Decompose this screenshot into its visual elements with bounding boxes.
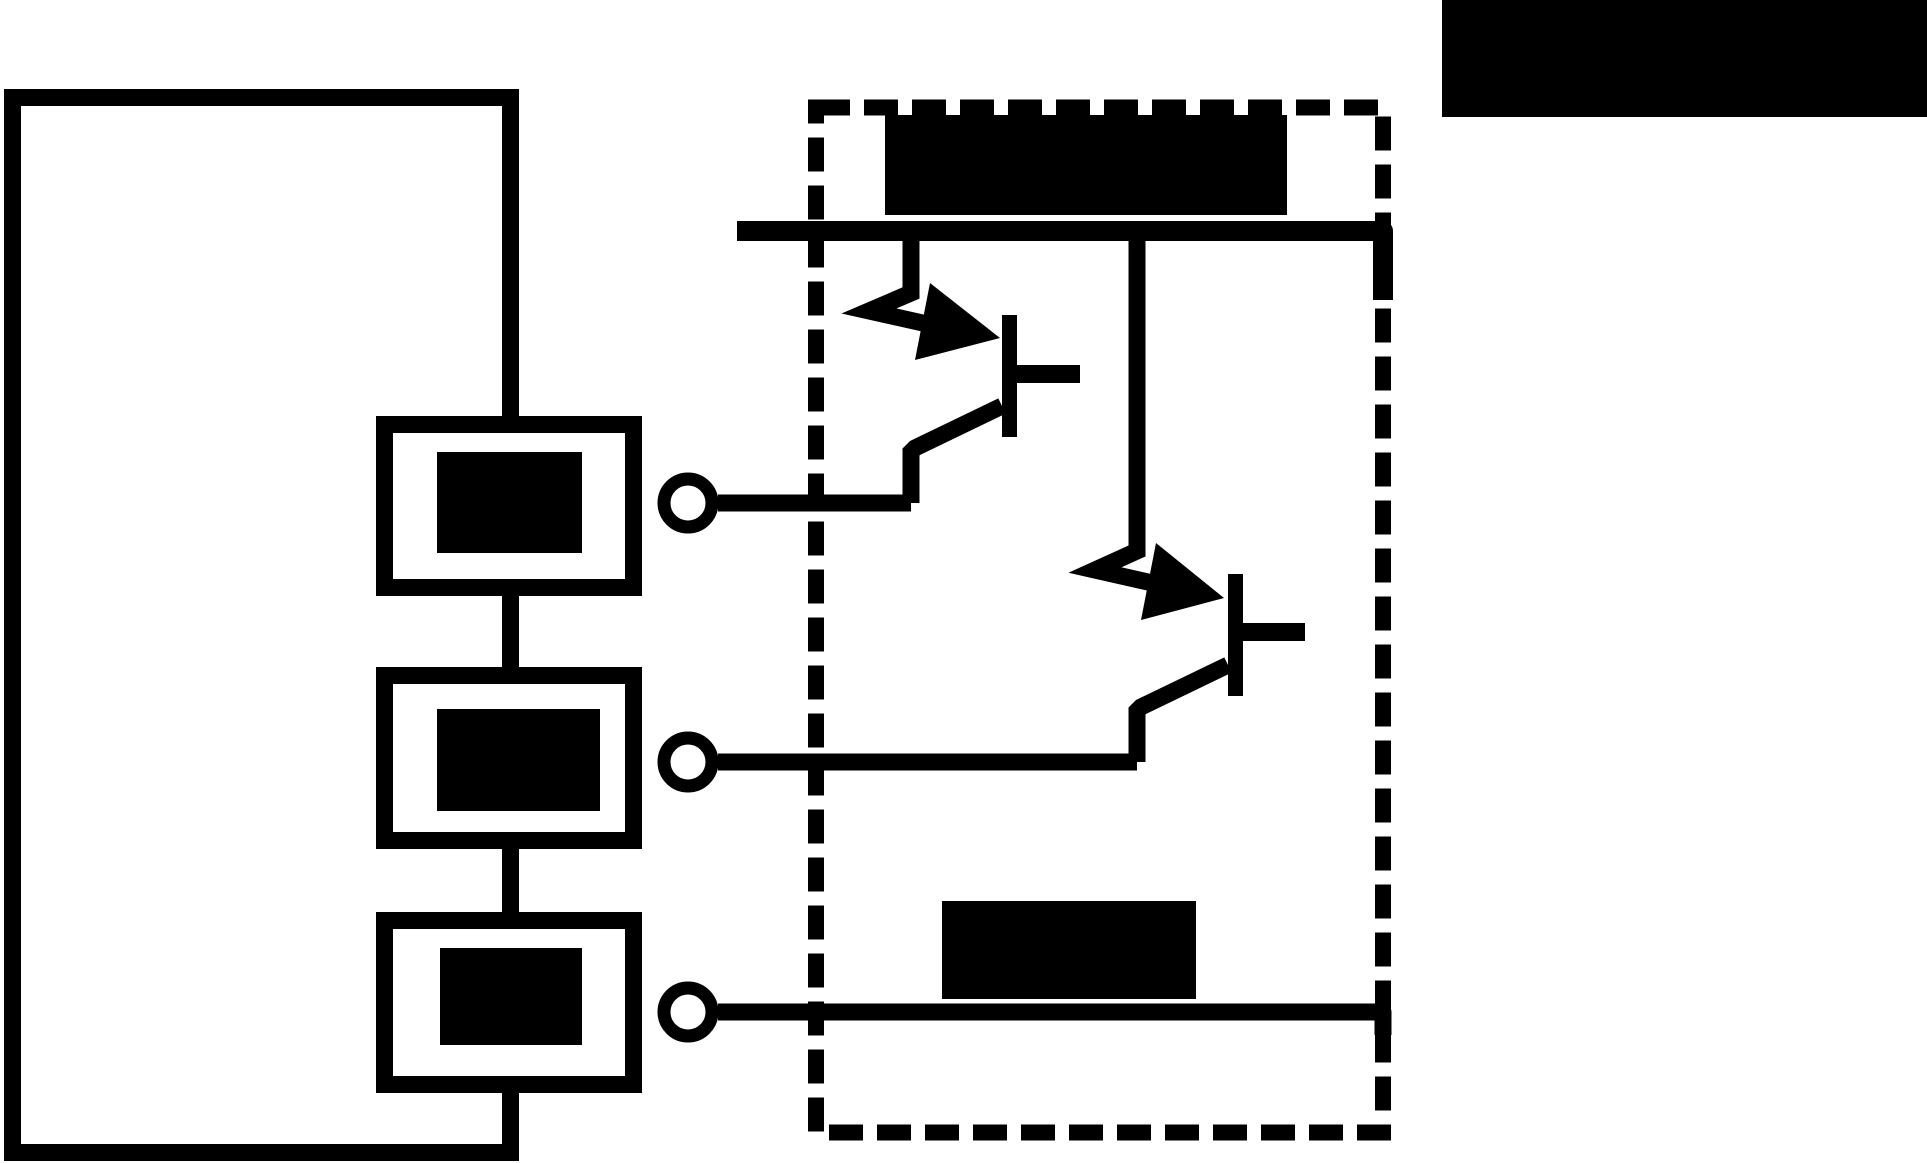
terminal-2-circle <box>664 738 712 786</box>
corner-redacted-label <box>1442 0 1927 117</box>
schematic-figure <box>0 0 1927 1163</box>
box3-redacted-label <box>440 948 582 1045</box>
schematic-canvas <box>0 0 1927 1163</box>
box1-redacted-label <box>437 452 582 553</box>
terminal-1-circle <box>664 479 712 527</box>
transistor-upper-base-bar <box>1002 315 1017 437</box>
box2-redacted-label <box>437 709 600 811</box>
transistor-lower-base-bar <box>1228 574 1243 696</box>
bottom-redacted-label <box>942 901 1196 999</box>
rail-redacted-label <box>885 115 1287 215</box>
terminal-3-circle <box>664 988 712 1036</box>
